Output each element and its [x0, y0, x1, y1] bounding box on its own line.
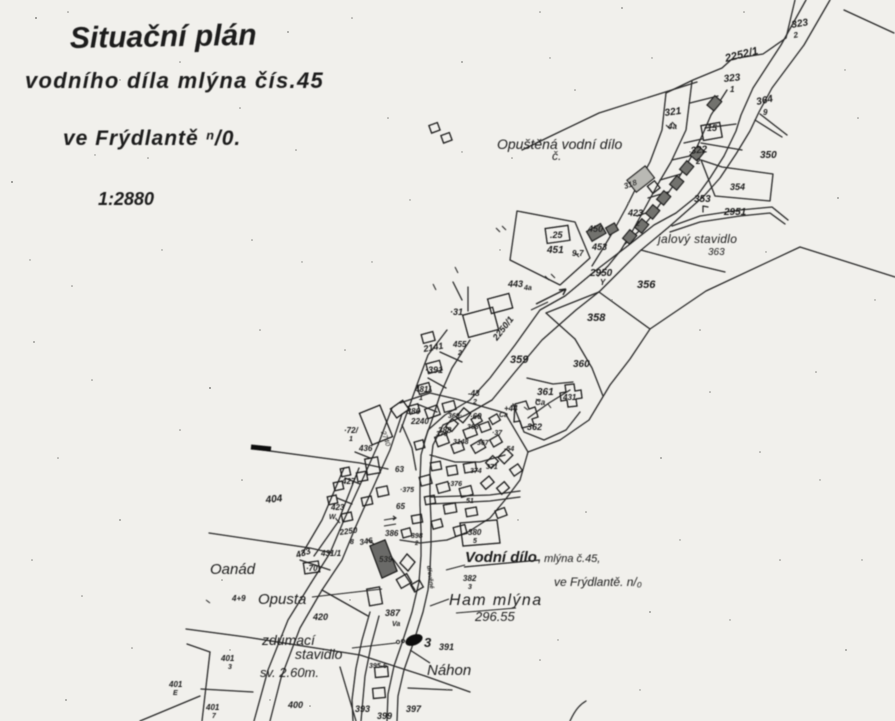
- svg-text:1: 1: [730, 85, 735, 94]
- svg-text:423: 423: [627, 208, 643, 218]
- svg-text:453: 453: [591, 242, 607, 252]
- svg-text:367: 367: [477, 440, 490, 447]
- svg-text:322: 322: [690, 144, 708, 157]
- svg-text:65: 65: [396, 502, 405, 511]
- svg-text:W.: W.: [329, 514, 337, 521]
- svg-text:·376: ·376: [448, 481, 462, 488]
- svg-text:481/: 481/: [414, 385, 431, 394]
- svg-text:391: 391: [439, 642, 454, 652]
- svg-text:1: 1: [349, 436, 353, 443]
- svg-text:sv. 2.60m.: sv. 2.60m.: [260, 665, 319, 680]
- svg-text:362: 362: [527, 422, 542, 432]
- svg-text:2: 2: [635, 221, 640, 228]
- svg-text:vodního díla mlýna čís.45: vodního díla mlýna čís.45: [25, 68, 324, 93]
- svg-text:354: 354: [730, 182, 745, 192]
- svg-text:395-6: 395-6: [369, 663, 387, 670]
- svg-text:2: 2: [472, 399, 477, 406]
- svg-text:E: E: [173, 690, 178, 697]
- svg-text:436: 436: [358, 444, 373, 453]
- svg-text:1:2880: 1:2880: [98, 189, 154, 209]
- svg-text:2951: 2951: [723, 207, 747, 218]
- svg-text:Oanád: Oanád: [210, 561, 256, 578]
- svg-text:4+9: 4+9: [231, 594, 246, 603]
- svg-text:393: 393: [355, 704, 370, 714]
- svg-text:398: 398: [411, 533, 423, 540]
- svg-text:2: 2: [414, 541, 419, 547]
- svg-text:3: 3: [424, 635, 432, 650]
- svg-text:401: 401: [205, 703, 220, 712]
- svg-text:370: 370: [436, 431, 448, 438]
- svg-text:363: 363: [708, 247, 725, 258]
- svg-text:4a: 4a: [523, 285, 532, 292]
- svg-text:401: 401: [168, 680, 183, 689]
- svg-text:358: 358: [587, 312, 606, 324]
- svg-text:Náhon: Náhon: [427, 662, 471, 679]
- svg-text:369·: 369·: [448, 413, 462, 420]
- svg-text:431/1: 431/1: [320, 549, 342, 558]
- svg-text:2: 2: [695, 157, 701, 166]
- svg-text:359: 359: [510, 354, 529, 366]
- svg-text:382: 382: [463, 574, 477, 583]
- svg-text:400: 400: [287, 700, 303, 710]
- svg-text:3: 3: [228, 664, 232, 671]
- svg-text:431: 431: [562, 393, 577, 402]
- svg-text:420: 420: [312, 612, 328, 622]
- svg-text:450: 450: [587, 224, 603, 234]
- svg-text:361: 361: [537, 387, 554, 398]
- svg-text:368: 368: [467, 424, 479, 431]
- svg-text:356: 356: [637, 279, 656, 291]
- svg-text:·391: ·391: [425, 365, 443, 375]
- svg-text:63: 63: [395, 465, 404, 474]
- svg-text:323: 323: [723, 72, 741, 85]
- svg-text:4a: 4a: [667, 122, 677, 131]
- svg-text:, mlýna č.45,: , mlýna č.45,: [538, 553, 600, 565]
- svg-text:539: 539: [379, 555, 393, 564]
- svg-text:Y: Y: [600, 278, 606, 287]
- svg-text:427: 427: [341, 477, 356, 486]
- svg-text:353: 353: [694, 194, 711, 205]
- svg-text:·70: ·70: [306, 564, 318, 573]
- svg-text:č.: č.: [552, 149, 561, 163]
- svg-text:·15: ·15: [704, 123, 718, 133]
- svg-text:9: 9: [763, 108, 768, 117]
- svg-text:455: 455: [452, 340, 467, 349]
- svg-text:387: 387: [385, 608, 401, 618]
- svg-text:443: 443: [507, 279, 523, 289]
- svg-text:397: 397: [406, 704, 422, 714]
- svg-text:401: 401: [220, 654, 235, 663]
- svg-text:9-7: 9-7: [572, 249, 584, 258]
- svg-text:380: 380: [468, 528, 482, 537]
- svg-text:-54: -54: [504, 446, 514, 453]
- svg-text:-386: -386: [404, 407, 421, 416]
- svg-text:·375: ·375: [400, 487, 414, 494]
- svg-text:451: 451: [546, 245, 564, 256]
- svg-text:Ca: Ca: [535, 398, 546, 407]
- svg-text:423: 423: [330, 503, 345, 512]
- svg-text:360: 360: [573, 359, 590, 370]
- svg-text:.25: .25: [550, 230, 564, 240]
- svg-text:374: 374: [470, 468, 482, 475]
- svg-text:371: 371: [486, 464, 498, 471]
- svg-text:2: 2: [457, 350, 462, 357]
- svg-text:2240: 2240: [410, 417, 429, 426]
- svg-text:350: 350: [760, 150, 777, 161]
- svg-text:386: 386: [385, 529, 399, 538]
- svg-text:·31: ·31: [450, 307, 463, 317]
- svg-text:3148: 3148: [453, 439, 469, 446]
- svg-text:jalový stavidlo: jalový stavidlo: [656, 232, 737, 246]
- svg-text:5: 5: [473, 538, 477, 545]
- svg-text:Ham mlýna: Ham mlýna: [449, 592, 543, 609]
- svg-text:Va: Va: [392, 621, 400, 628]
- svg-text:·72/: ·72/: [344, 426, 359, 435]
- svg-text:-43: -43: [468, 389, 480, 398]
- svg-text:Opusta: Opusta: [258, 591, 306, 608]
- svg-text:404: 404: [264, 493, 283, 506]
- svg-text:ve Frýdlantě ⁿ/0.: ve Frýdlantě ⁿ/0.: [63, 127, 241, 150]
- svg-text:399: 399: [377, 711, 392, 721]
- svg-text:1: 1: [419, 395, 423, 402]
- svg-text:51: 51: [466, 498, 474, 505]
- svg-text:stavidlo: stavidlo: [295, 646, 343, 662]
- svg-text:Ca: Ca: [499, 412, 508, 419]
- svg-text:ve Frýdlantě. n/₀: ve Frýdlantě. n/₀: [554, 575, 642, 589]
- svg-text:Situační plán: Situační plán: [70, 19, 257, 55]
- svg-text:·37: ·37: [492, 430, 503, 437]
- svg-text:·60: ·60: [470, 412, 482, 421]
- svg-text:3: 3: [468, 584, 472, 591]
- svg-text:8: 8: [350, 539, 354, 546]
